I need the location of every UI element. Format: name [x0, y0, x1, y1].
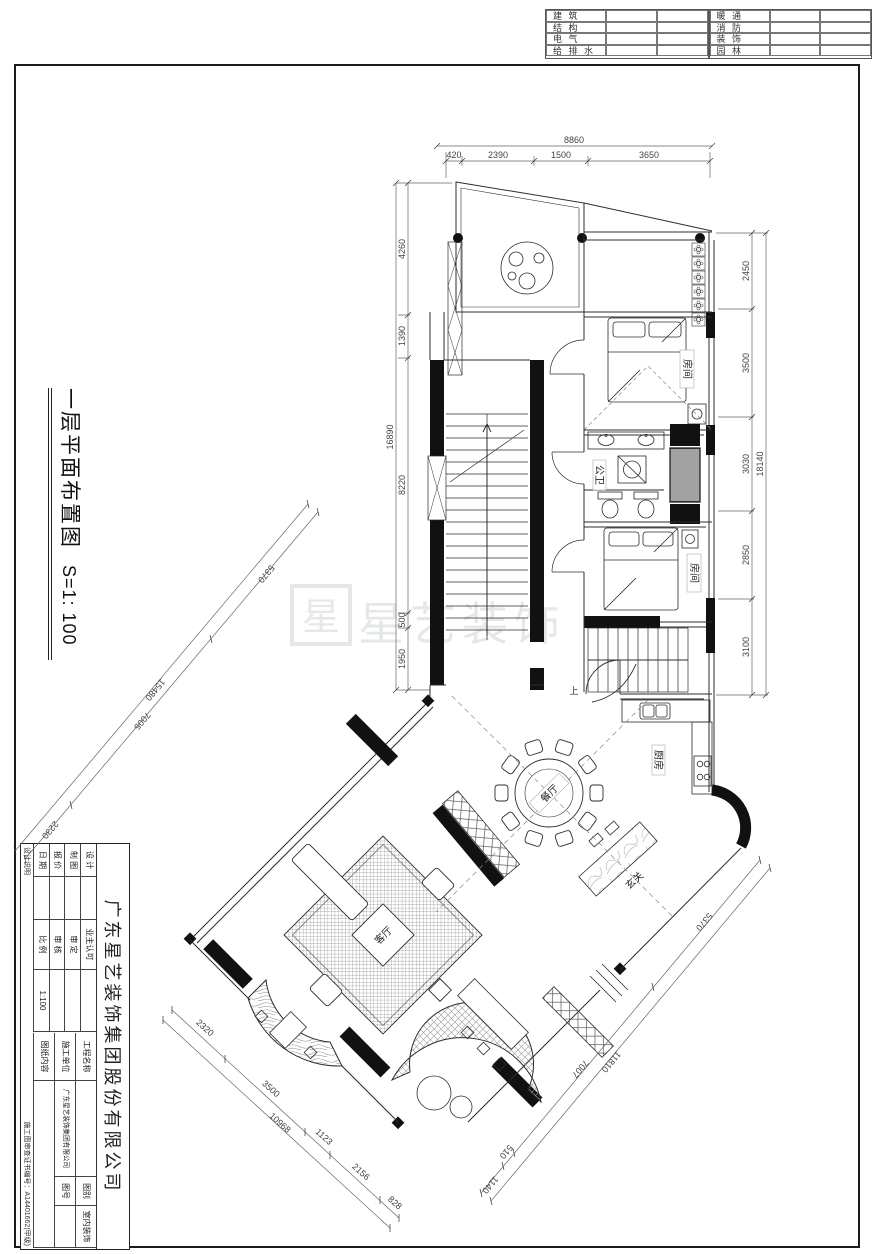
toilet-icon	[598, 492, 658, 518]
window-band	[543, 987, 614, 1058]
dim-text: 3030	[741, 454, 751, 474]
dim-text: 15480	[143, 677, 167, 703]
watermark-logo: 星	[302, 597, 340, 639]
dim-text: 1123	[313, 1127, 334, 1147]
dim-text: 3500	[260, 1078, 282, 1099]
upper-section	[428, 182, 746, 846]
shower-column	[670, 424, 700, 524]
dim-text: 420	[446, 150, 461, 160]
dim-text: 10968	[267, 1111, 292, 1135]
foyer-console	[579, 821, 657, 896]
flower-boxes	[692, 243, 705, 326]
dim-text: 500	[397, 612, 407, 627]
dim-text: 1500	[551, 150, 571, 160]
dim-text: 8860	[564, 135, 584, 145]
terrace-outline	[456, 182, 584, 312]
dim-text: 3500	[741, 353, 751, 373]
lower-stair	[588, 628, 688, 702]
floor-plan: 星 星艺装饰	[0, 0, 878, 1254]
terrace-table	[501, 242, 553, 294]
dim-text: 2450	[741, 261, 751, 281]
room-label-kitchen: 厨房	[652, 750, 665, 770]
dim-text: 2320	[194, 1017, 216, 1038]
dim-text: 5370	[694, 911, 715, 933]
bed-icon	[604, 528, 698, 610]
dim-text: 2390	[488, 150, 508, 160]
dim-text: 4260	[397, 239, 407, 259]
dim-text: 510	[498, 1143, 515, 1161]
dim-text: 2156	[350, 1161, 372, 1182]
room-label-foyer: 玄关	[623, 869, 647, 892]
room-label-bath: 公卫	[593, 465, 604, 485]
dimensions	[14, 143, 771, 1232]
kitchen-counter	[622, 700, 712, 794]
dim-text: 3100	[741, 637, 751, 657]
dimension-texts: 8860 420 2390 1500 3650 2450 3500 3030 2…	[40, 135, 765, 1212]
dim-text: 8220	[397, 475, 407, 495]
staircase	[446, 414, 528, 640]
dim-text: 1140	[480, 1174, 500, 1195]
washing-machine	[618, 456, 646, 483]
dim-text: 1390	[397, 326, 407, 346]
dim-text: 18140	[755, 451, 765, 476]
dim-text: 3650	[639, 150, 659, 160]
dim-text: 16890	[385, 424, 395, 449]
dim-text: 1950	[397, 649, 407, 669]
stair-up-label: 上	[569, 686, 578, 696]
door-arc	[550, 340, 584, 572]
dim-text: 2850	[741, 545, 751, 565]
columns	[453, 233, 705, 243]
room-label-bedroom1: 房间	[681, 359, 694, 379]
dim-text: 7007	[570, 1058, 591, 1080]
room-label-bedroom2: 房间	[688, 563, 701, 583]
